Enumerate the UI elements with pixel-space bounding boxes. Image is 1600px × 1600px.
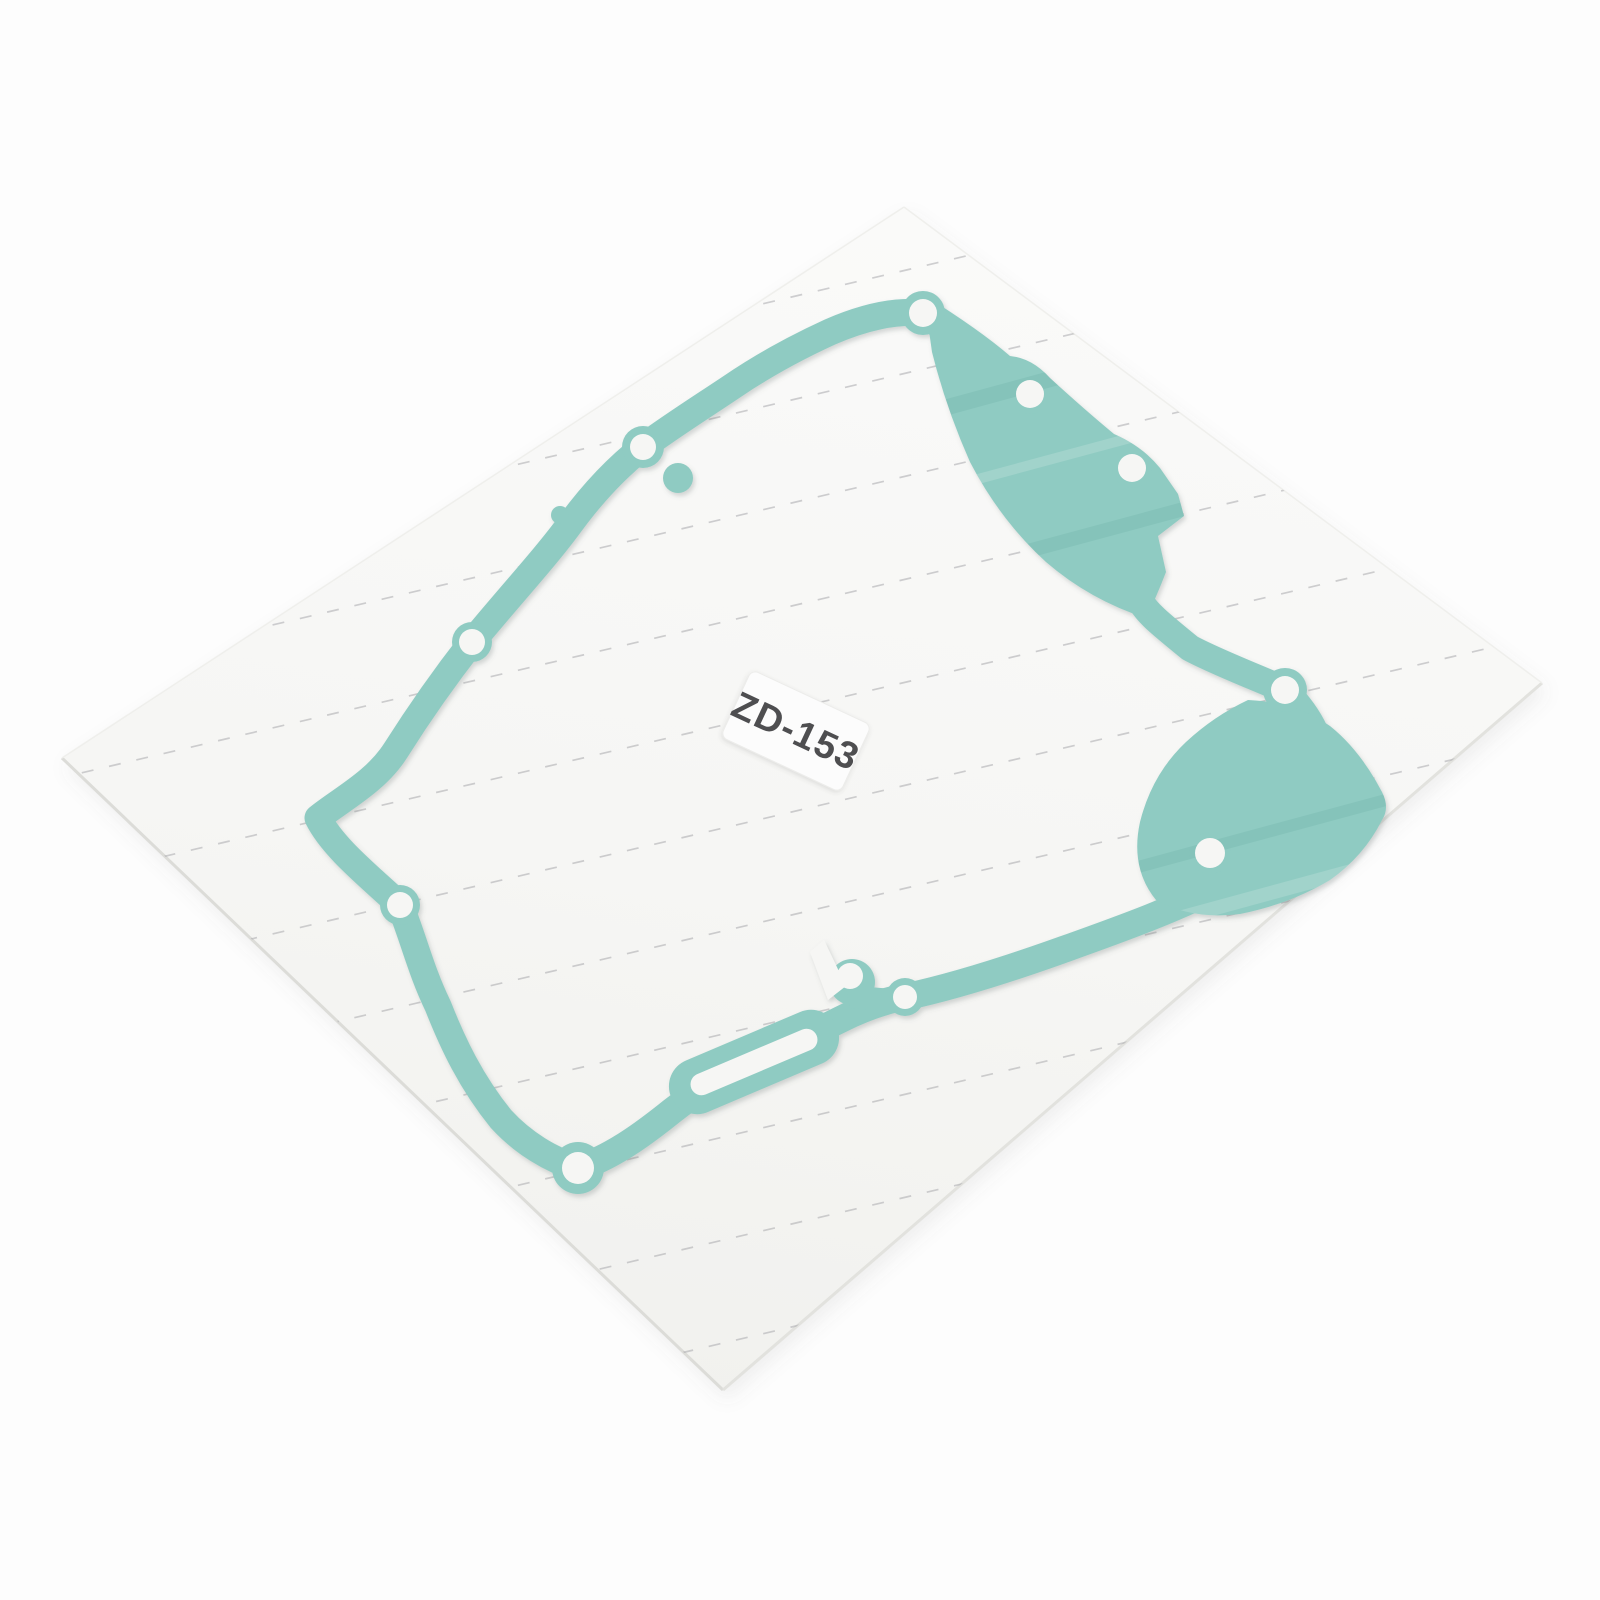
band-bump xyxy=(663,463,693,493)
gasket-product-photo-canvas: ZD-153 xyxy=(0,0,1600,1600)
bolt-hole xyxy=(387,892,413,918)
bolt-hole xyxy=(1118,454,1146,482)
bolt-hole xyxy=(1016,380,1044,408)
product-photo: ZD-153 xyxy=(0,0,1600,1600)
band-bump xyxy=(551,506,569,524)
bolt-hole xyxy=(893,985,917,1009)
bolt-hole xyxy=(562,1152,594,1184)
bolt-hole xyxy=(1271,676,1299,704)
bolt-hole xyxy=(1195,838,1225,868)
hook-cutout xyxy=(837,963,863,989)
bolt-hole xyxy=(909,299,937,327)
bolt-hole xyxy=(630,434,656,460)
bolt-hole xyxy=(459,629,485,655)
